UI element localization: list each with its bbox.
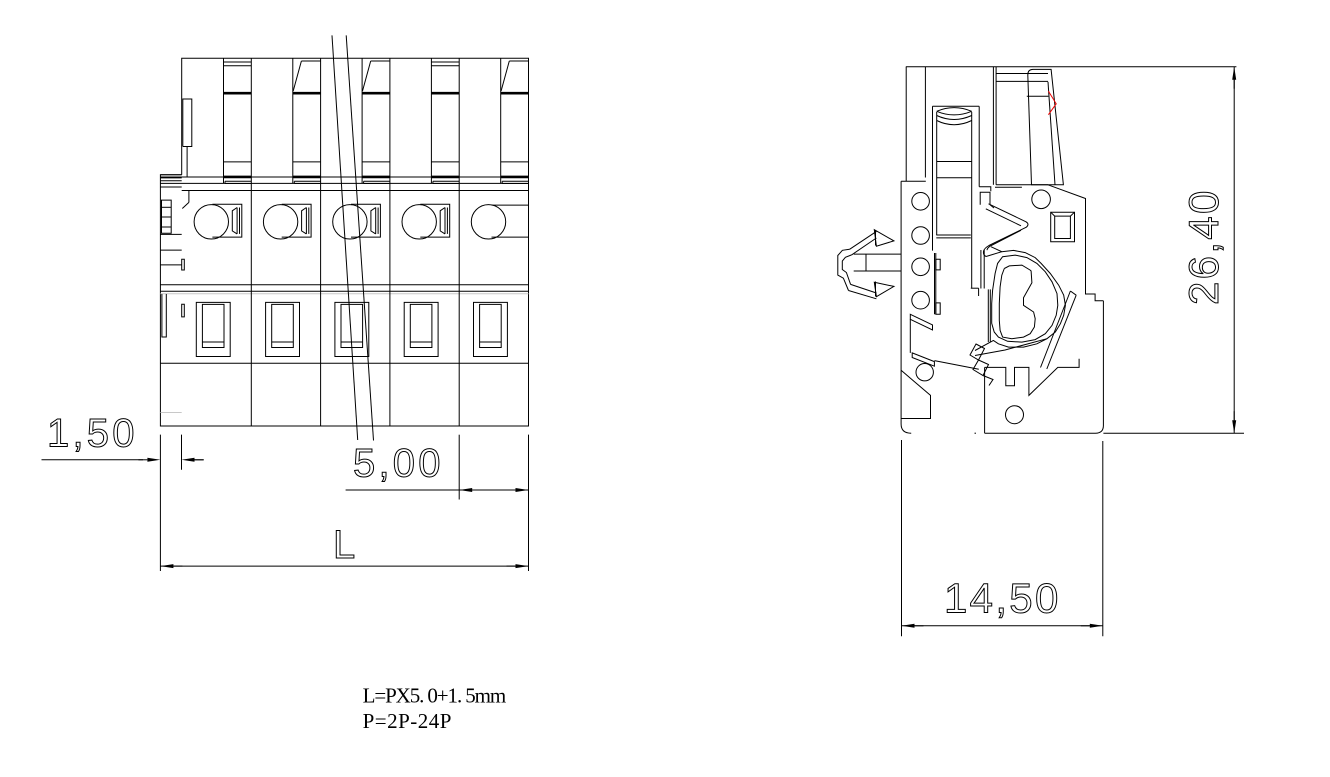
svg-text:P=2P-24P: P=2P-24P (363, 709, 452, 733)
svg-text:1,50: 1,50 (47, 411, 138, 455)
svg-text:L: L (333, 523, 358, 567)
svg-text:14,50: 14,50 (944, 574, 1061, 621)
svg-text:5,00: 5,00 (353, 441, 444, 485)
svg-text:26,40: 26,40 (1180, 188, 1227, 305)
svg-text:L=PX5. 0+1. 5mm: L=PX5. 0+1. 5mm (363, 683, 506, 707)
